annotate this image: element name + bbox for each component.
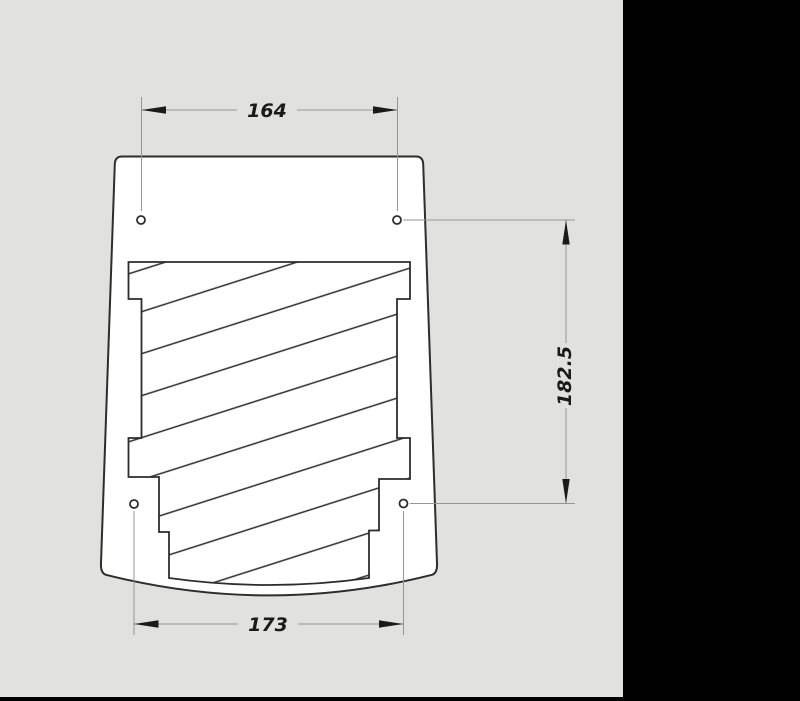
hole-top-right <box>393 216 401 224</box>
right-black-panel <box>623 0 800 701</box>
technical-drawing: 164 173 182.5 <box>0 0 623 697</box>
arrowhead-up-icon <box>562 220 569 245</box>
cad-viewport: 164 173 182.5 <box>0 0 800 701</box>
arrowhead-left-icon <box>134 620 159 627</box>
dimension-value-side: 182.5 <box>554 346 576 406</box>
hatch-section <box>129 262 411 585</box>
arrowhead-left-icon <box>142 106 167 113</box>
dimension-value-bottom: 173 <box>248 614 288 636</box>
hole-bottom-left <box>130 500 138 508</box>
arrowhead-down-icon <box>562 479 569 504</box>
arrowhead-right-icon <box>379 620 404 627</box>
dimension-value-top: 164 <box>247 100 287 122</box>
hole-top-left <box>137 216 145 224</box>
bottom-black-bar <box>0 697 800 701</box>
hole-bottom-right <box>400 500 408 508</box>
arrowhead-right-icon <box>373 106 398 113</box>
